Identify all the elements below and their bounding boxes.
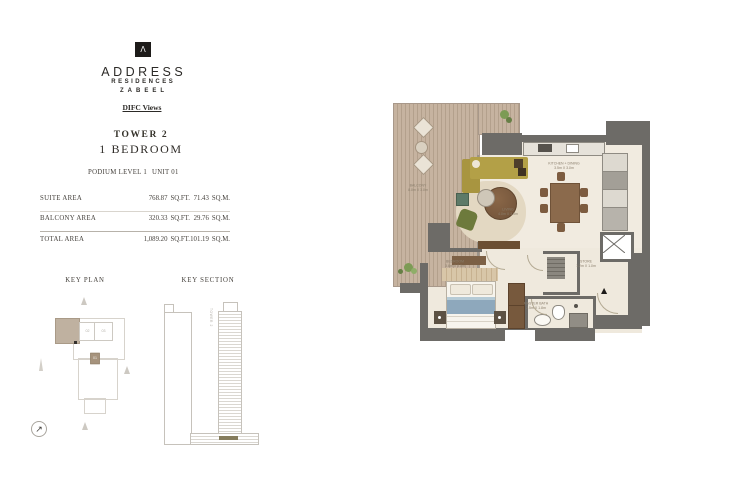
nightstand [434, 311, 446, 324]
brochure-page: Λ ADDRESS RESIDENCES ZABEEL DIFC Views T… [0, 0, 750, 500]
room-label-master-bath: MASTER BATH2.5m X 1.8m [523, 302, 549, 311]
wall [525, 296, 528, 328]
dining-chair [580, 188, 588, 197]
wall [420, 263, 428, 341]
floor-plan: ▲ BALCONY8.0m X 3.0m LIVING4.0m X 3.5m K… [388, 93, 663, 361]
entry-arrow-icon: ▲ [601, 287, 607, 295]
coffee-table-small [477, 189, 495, 207]
podium-level-highlight [219, 436, 238, 440]
sink-icon [566, 144, 579, 153]
toilet-icon [552, 305, 565, 320]
hob-icon [538, 144, 552, 152]
tree-icon [124, 366, 130, 374]
tower2-floors [218, 311, 242, 445]
kitchen-cabinet [602, 153, 628, 173]
wall [642, 121, 650, 326]
podium-level-label: PODIUM LEVEL 1 [88, 169, 147, 176]
wall [606, 121, 642, 145]
wall [593, 315, 642, 329]
shower-tray [569, 313, 588, 328]
plant-icon [411, 268, 417, 274]
key-section-title: KEY SECTION [168, 277, 248, 284]
area-table: SUITE AREA 768.87SQ.FT. 71.43SQ.M. BALCO… [40, 190, 230, 250]
compass-icon: ↗ [31, 421, 47, 437]
kitchen-appliance [602, 207, 628, 231]
balcony-deck-top [478, 103, 520, 135]
kitchen-appliance [602, 171, 628, 191]
row-label: BALCONY AREA [40, 215, 96, 222]
nightstand [494, 311, 506, 324]
sofa-pillow [472, 160, 480, 168]
lamp-icon [438, 316, 441, 319]
table-divider [40, 211, 230, 212]
room-label-store: STORE1.2m X 1.0m [574, 260, 597, 269]
blanket [447, 297, 495, 314]
room-label-kitchen-dining: KITCHEN + DINING3.5m X 3.0m [547, 162, 582, 171]
tree-icon [81, 297, 87, 305]
brand-tagline: DIFC Views [52, 103, 232, 112]
dining-chair [540, 188, 548, 197]
table-divider-total [40, 231, 230, 232]
shower-head-icon [574, 304, 578, 308]
table-row-suite: SUITE AREA 768.87SQ.FT. 71.43SQ.M. [40, 195, 230, 207]
row-sqm: 71.43SQ.M. [158, 195, 230, 202]
row-sqm: 101.19SQ.M. [158, 236, 230, 243]
unit-type-title: 1 BEDROOM [51, 142, 231, 157]
elevator [600, 232, 634, 262]
bed-fold-line [447, 316, 495, 317]
room-label-balcony: BALCONY8.0m X 3.0m [402, 184, 434, 193]
wall [522, 135, 606, 142]
table-row-total: TOTAL AREA 1,089.20SQ.FT. 101.19SQ.M. [40, 236, 230, 248]
media-console [478, 241, 520, 249]
elevator-x-icon [603, 235, 625, 253]
plant-box-icon [456, 193, 469, 206]
plant-icon [506, 117, 512, 123]
kitchen-counter [523, 142, 605, 156]
sink-icon [534, 314, 551, 326]
brand-name: ADDRESS [52, 65, 232, 79]
headboard [442, 268, 498, 281]
dining-table [550, 183, 580, 223]
row-label: SUITE AREA [40, 195, 82, 202]
dining-chair [557, 172, 565, 181]
wall [428, 248, 482, 252]
room-label-bedroom: BEDROOM3.6m X 3.0m [442, 260, 469, 269]
landmark-spire-icon [39, 358, 43, 371]
side-table [415, 141, 428, 154]
dining-chair [580, 204, 588, 213]
brand-line2: RESIDENCES [52, 79, 232, 85]
tower1-outline [164, 312, 192, 445]
bed [446, 281, 496, 329]
store-shelves [547, 257, 565, 279]
tower2-section-label: TOWER 2 [209, 308, 212, 327]
plant-icon [398, 269, 403, 274]
wall [428, 223, 450, 248]
key-plan-unit-01-label: 01 [90, 353, 100, 364]
row-label: TOTAL AREA [40, 236, 84, 243]
room-label-living: LIVING4.0m X 3.5m [494, 208, 523, 217]
sofa-pillow [514, 159, 523, 168]
tower-footprint-outline [78, 358, 118, 400]
wall [400, 283, 428, 293]
unit-number-label: UNIT 01 [152, 169, 179, 176]
dining-chair [557, 223, 565, 232]
wall [482, 133, 522, 155]
brand-logo-glyph: Λ [140, 45, 145, 54]
row-sqm: 29.76SQ.M. [158, 215, 230, 222]
key-plan-unit-03: 03 [94, 322, 113, 341]
tower-title: TOWER 2 [51, 130, 231, 140]
service-opening [505, 330, 535, 341]
dining-chair [540, 204, 548, 213]
store-room [543, 251, 580, 295]
tree-icon [82, 422, 88, 430]
table-row-balcony: BALCONY AREA 320.33SQ.FT. 29.76SQ.M. [40, 215, 230, 227]
key-plan-graphic: 01 02 03 ↗ [30, 292, 160, 442]
lamp-icon [498, 316, 501, 319]
wardrobe-divider [509, 305, 524, 306]
kitchen-cabinet [602, 189, 628, 209]
key-plan-title: KEY PLAN [45, 277, 125, 284]
pillow [450, 284, 471, 295]
brand-line3: ZABEEL [52, 88, 232, 94]
brand-logo-icon: Λ [135, 42, 151, 57]
bed-fold-line [447, 321, 495, 322]
sofa-pillow [518, 168, 526, 176]
unit-location-dot [74, 341, 77, 344]
tower-footprint-outline [84, 398, 106, 414]
key-section-graphic: TOWER 2 [160, 292, 270, 458]
pillow [472, 284, 493, 295]
wall [593, 296, 596, 317]
